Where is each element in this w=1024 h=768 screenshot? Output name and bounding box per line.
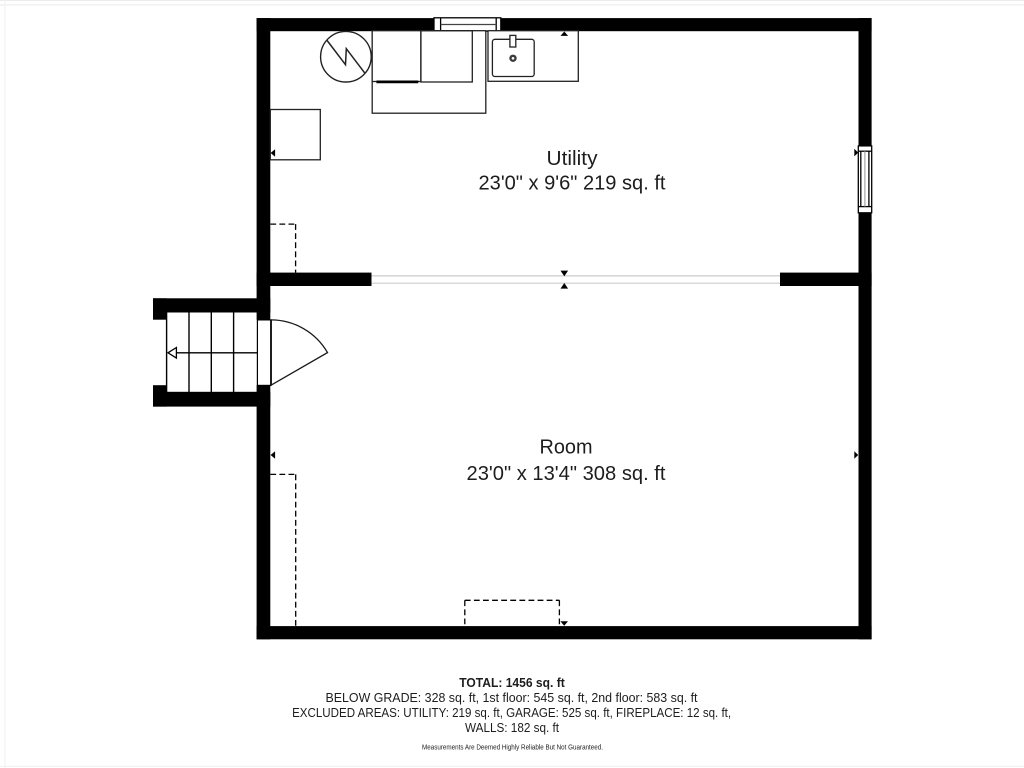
svg-text:Room: Room: [540, 437, 593, 459]
svg-text:23'0" x 9'6" 219 sq. ft: 23'0" x 9'6" 219 sq. ft: [479, 173, 666, 195]
svg-text:EXCLUDED AREAS: UTILITY: 219 s: EXCLUDED AREAS: UTILITY: 219 sq. ft, GAR…: [292, 705, 731, 720]
svg-text:BELOW GRADE: 328 sq. ft, 1st f: BELOW GRADE: 328 sq. ft, 1st floor: 545 …: [326, 690, 698, 705]
svg-text:23'0" x 13'4" 308 sq. ft: 23'0" x 13'4" 308 sq. ft: [467, 463, 666, 485]
svg-text:WALLS: 182 sq. ft: WALLS: 182 sq. ft: [465, 720, 559, 735]
svg-text:Measurements Are Deemed Highly: Measurements Are Deemed Highly Reliable …: [422, 745, 603, 752]
svg-text:TOTAL: 1456 sq. ft: TOTAL: 1456 sq. ft: [459, 675, 565, 690]
svg-text:Utility: Utility: [547, 148, 598, 170]
